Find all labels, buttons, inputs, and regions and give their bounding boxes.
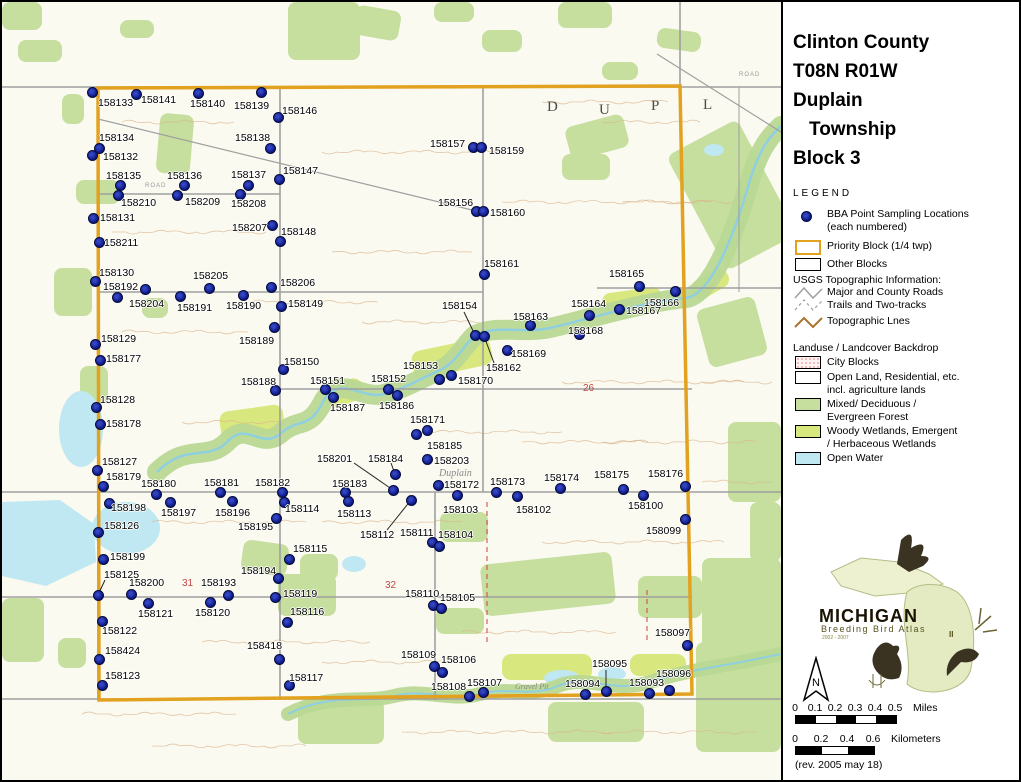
sampling-point-label: 158207 xyxy=(232,223,267,234)
sampling-point-dot-158184 xyxy=(390,469,401,480)
sampling-point-dot-158121 xyxy=(143,598,154,609)
sampling-point-label: 158201 xyxy=(317,454,352,465)
scale-tick: 0.5 xyxy=(888,702,903,714)
map-document: DUPLDuplainGravel Pit263132ROADROAD 1581… xyxy=(0,0,1021,782)
sampling-point-label: 158162 xyxy=(486,363,521,374)
sampling-point-dot-158125 xyxy=(93,590,104,601)
logo-numeral: II xyxy=(949,630,953,639)
sampling-point-label: 158192 xyxy=(103,282,138,293)
sampling-point-dot-158211 xyxy=(94,237,105,248)
sampling-point-label: 158132 xyxy=(103,152,138,163)
sampling-point-label: 158185 xyxy=(427,441,462,452)
city-blocks-swatch xyxy=(795,356,821,369)
sampling-point-label: 158191 xyxy=(177,303,212,314)
sampling-point-dot-158160 xyxy=(478,206,489,217)
sampling-point-label: 158172 xyxy=(444,480,479,491)
sampling-point-label: 158176 xyxy=(648,469,683,480)
legend-label: Major and County Roads xyxy=(827,286,943,299)
topo-map-area: DUPLDuplainGravel Pit263132ROADROAD 1581… xyxy=(2,2,783,780)
sampling-point-label: 158152 xyxy=(371,374,406,385)
sampling-point-label: 158153 xyxy=(403,361,438,372)
open-water-swatch xyxy=(795,452,821,465)
sampling-point-label: 158102 xyxy=(516,505,551,516)
sampling-point-label: 158130 xyxy=(99,268,134,279)
landuse-label: Mixed/ Deciduous / xyxy=(827,398,916,411)
sampling-point-dot-158126 xyxy=(93,527,104,538)
sampling-point-dot-158093 xyxy=(644,688,655,699)
sampling-point-dot-158176 xyxy=(680,481,691,492)
sampling-point-dot-158104 xyxy=(434,541,445,552)
sampling-point-label: 158198 xyxy=(111,503,146,514)
sampling-point-dot-158207 xyxy=(267,220,278,231)
sampling-point-label: 158210 xyxy=(121,198,156,209)
sampling-point-dot-158131 xyxy=(88,213,99,224)
sampling-point-dot-158209 xyxy=(172,190,183,201)
sampling-point-dot-158187 xyxy=(328,392,339,403)
sampling-point-dot-158205 xyxy=(204,283,215,294)
sampling-point-label: 158200 xyxy=(129,578,164,589)
sampling-point-dot-158138 xyxy=(265,143,276,154)
sampling-point-label: 158129 xyxy=(101,334,136,345)
sampling-point-label: 158110 xyxy=(405,589,439,600)
sampling-point-label: 158160 xyxy=(490,208,525,219)
legend-label: Trails and Two-tracks xyxy=(827,299,943,312)
sampling-point-label: 158190 xyxy=(226,301,261,312)
sampling-point-label: 158099 xyxy=(646,526,681,537)
sampling-point-label: 158194 xyxy=(241,566,276,577)
sampling-point-dot-158113 xyxy=(343,496,354,507)
sampling-point-dot-158174 xyxy=(555,483,566,494)
sampling-point-dot-158192 xyxy=(112,292,123,303)
topo-zigzag-icon xyxy=(793,315,825,329)
sampling-point-label: 158103 xyxy=(443,505,478,516)
sampling-point-label: 158206 xyxy=(280,278,315,289)
sampling-point-label: 158137 xyxy=(231,170,266,181)
landuse-item-open: Open Land, Residential, etc. incl. agric… xyxy=(793,371,960,397)
bba-point-icon xyxy=(801,211,812,222)
sampling-point-dot-158120 xyxy=(205,597,216,608)
km-scale-bar xyxy=(795,746,875,755)
sampling-point-dot-158095 xyxy=(601,686,612,697)
sampling-point-dot-158173 xyxy=(491,487,502,498)
sampling-point-dot-158106 xyxy=(437,667,448,678)
sampling-point-label: 158117 xyxy=(289,673,323,684)
sampling-point-dot-158201 xyxy=(388,485,399,496)
sampling-point-dot-158196 xyxy=(227,496,238,507)
sampling-point-label: 158095 xyxy=(592,659,627,670)
sampling-point-label: 158146 xyxy=(282,106,317,117)
sampling-point-label: 158094 xyxy=(565,679,600,690)
sampling-point-dot-158127 xyxy=(92,465,103,476)
sampling-point-label: 158116 xyxy=(290,607,324,618)
sampling-point-dot-158094 xyxy=(580,689,591,700)
sampling-point-label: 158211 xyxy=(104,238,138,249)
sampling-point-label: 158205 xyxy=(193,271,228,282)
sampling-point-dot-158097 xyxy=(682,640,693,651)
sampling-point-label: 158138 xyxy=(235,133,270,144)
sampling-point-dot-158115 xyxy=(284,554,295,565)
sampling-point-dot-158165 xyxy=(634,281,645,292)
sampling-point-label: 158096 xyxy=(656,669,691,680)
sampling-point-label: 158161 xyxy=(484,259,519,270)
sampling-point-label: 158140 xyxy=(190,99,225,110)
sampling-point-dot-158162 xyxy=(479,331,490,342)
landuse-label: Open Water xyxy=(827,452,883,465)
miles-scale-bar xyxy=(795,715,897,724)
scale-tick: 0 xyxy=(792,733,798,745)
sampling-point-label: 158100 xyxy=(628,501,663,512)
sampling-point-label: 158147 xyxy=(283,166,318,177)
sampling-point-label: 158136 xyxy=(167,171,202,182)
sampling-point-dot-158200 xyxy=(126,589,137,600)
title-line: Duplain xyxy=(793,86,929,115)
sampling-point-label: 158193 xyxy=(201,578,236,589)
sampling-point-dot-158177 xyxy=(95,355,106,366)
sampling-point-label: 158183 xyxy=(332,479,367,490)
sampling-point-dot-158102 xyxy=(512,491,523,502)
scale-unit: Kilometers xyxy=(891,733,941,745)
sampling-point-dot-158164 xyxy=(584,310,595,321)
legend-item-topo: Topographic Lnes xyxy=(793,315,910,328)
sampling-point-label: 158163 xyxy=(513,312,548,323)
sampling-point-label: 158187 xyxy=(330,403,365,414)
sampling-point-label: 158127 xyxy=(102,457,137,468)
sampling-point-dot-158096 xyxy=(664,685,675,696)
landuse-label: Woody Wetlands, Emergent xyxy=(827,425,957,438)
sampling-point-label: 158131 xyxy=(100,213,135,224)
north-label: N xyxy=(812,677,820,689)
landuse-label: incl. agriculture lands xyxy=(827,384,960,397)
open-land-swatch xyxy=(795,371,821,384)
map-title: Clinton County T08N R01W Duplain Townshi… xyxy=(793,28,929,173)
sampling-point-label: 158173 xyxy=(490,477,525,488)
sampling-point-label: 158156 xyxy=(438,198,473,209)
sampling-point-label: 158203 xyxy=(434,456,469,467)
sampling-point-label: 158135 xyxy=(106,171,141,182)
sampling-point-label: 158120 xyxy=(195,608,230,619)
sampling-point-label: 158169 xyxy=(511,349,546,360)
title-line: Block 3 xyxy=(793,144,929,173)
sampling-point-label: 158111 xyxy=(400,528,433,539)
landuse-item-city: City Blocks xyxy=(793,356,879,369)
sampling-point-label: 158126 xyxy=(104,521,139,532)
sampling-point-label: 158164 xyxy=(571,299,606,310)
sampling-point-label: 158168 xyxy=(568,326,603,337)
sampling-point-label: 158177 xyxy=(106,354,141,365)
scale-tick: 0.2 xyxy=(814,733,829,745)
scale-unit: Miles xyxy=(913,702,938,714)
sampling-point-label: 158109 xyxy=(401,650,436,661)
sampling-point-label: 158119 xyxy=(283,589,317,600)
sampling-point-label: 158197 xyxy=(161,508,196,519)
sampling-point-dot-158119 xyxy=(270,592,281,603)
sampling-point-dot-158139 xyxy=(256,87,267,98)
sampling-point-label: 158184 xyxy=(368,454,403,465)
sampling-point-label: 158195 xyxy=(238,522,273,533)
title-line: Township xyxy=(793,115,929,144)
landuse-label: / Herbaceous Wetlands xyxy=(827,438,957,451)
sampling-point-label: 158106 xyxy=(441,655,476,666)
sampling-point-dot-158197 xyxy=(165,497,176,508)
sampling-point-dot-158167 xyxy=(614,304,625,315)
sampling-point-dot-158424 xyxy=(94,654,105,665)
sampling-point-label: 158208 xyxy=(231,199,266,210)
legend-label: BBA Point Sampling Locations xyxy=(827,208,969,221)
sampling-point-label: 158112 xyxy=(360,530,394,541)
sampling-point-label: 158113 xyxy=(337,509,371,520)
sampling-point-label: 158108 xyxy=(431,682,466,693)
scale-tick: 0.2 xyxy=(828,702,843,714)
landuse-label: City Blocks xyxy=(827,356,879,369)
sampling-point-label: 158181 xyxy=(204,478,239,489)
sampling-point-label: 158165 xyxy=(609,269,644,280)
sampling-point-dot-158204 xyxy=(140,284,151,295)
sampling-point-label: 158148 xyxy=(281,227,316,238)
sampling-point-dot-158185 xyxy=(411,429,422,440)
sampling-point-dot-158103 xyxy=(452,490,463,501)
sampling-point-dot-158166 xyxy=(670,286,681,297)
sampling-point-label: 158105 xyxy=(440,593,475,604)
legend-item-bba: BBA Point Sampling Locations (each numbe… xyxy=(793,208,969,234)
sampling-point-label: 158134 xyxy=(99,133,134,144)
scale-tick: 0.1 xyxy=(808,702,823,714)
legend-heading: LEGEND xyxy=(793,188,852,199)
scale-tick: 0.6 xyxy=(866,733,881,745)
sampling-points-layer: 1581331581411581401581391581461581341581… xyxy=(2,2,781,780)
sampling-point-dot-158099 xyxy=(680,514,691,525)
sampling-point-label: 158107 xyxy=(467,678,502,689)
sampling-point-dot-158149 xyxy=(276,301,287,312)
sampling-point-label: 158174 xyxy=(544,473,579,484)
sampling-point-label: 158154 xyxy=(442,301,477,312)
title-line: Clinton County xyxy=(793,28,929,57)
sampling-point-label: 158180 xyxy=(141,479,176,490)
legend-label: Priority Block (1/4 twp) xyxy=(827,240,932,253)
sampling-point-dot-158418 xyxy=(274,654,285,665)
sampling-point-label: 158122 xyxy=(102,626,137,637)
logo-subtitle: Breeding Bird Atlas xyxy=(821,624,926,634)
sampling-point-dot-158161 xyxy=(479,269,490,280)
km-scale-ticks: 00.20.40.6Kilometers xyxy=(795,733,1015,745)
sampling-point-label: 158418 xyxy=(247,641,282,652)
sampling-point-dot-158180 xyxy=(151,489,162,500)
sampling-point-dot-158112 xyxy=(406,495,417,506)
sampling-point-label: 158186 xyxy=(379,401,414,412)
other-blocks-swatch xyxy=(795,258,821,271)
sampling-point-label: 158188 xyxy=(241,377,276,388)
sampling-point-label: 158104 xyxy=(438,530,473,541)
sampling-point-dot-158199 xyxy=(98,554,109,565)
sampling-point-label: 158133 xyxy=(98,98,133,109)
legend-item-roads: Major and County Roads Trails and Two-tr… xyxy=(793,286,943,312)
sampling-point-dot-158172 xyxy=(433,480,444,491)
sampling-point-label: 158167 xyxy=(626,306,661,317)
sampling-point-dot-158116 xyxy=(282,617,293,628)
scale-tick: 0.4 xyxy=(868,702,883,714)
title-line: T08N R01W xyxy=(793,57,929,86)
sampling-point-dot-158140 xyxy=(193,88,204,99)
sampling-point-label: 158114 xyxy=(285,504,319,515)
sampling-point-dot-158190 xyxy=(238,290,249,301)
scale-tick: 0.3 xyxy=(848,702,863,714)
roads-zigzag-icon xyxy=(793,286,825,312)
revision-date: (rev. 2005 may 18) xyxy=(795,759,882,771)
sampling-point-label: 158196 xyxy=(215,508,250,519)
scale-tick: 0 xyxy=(792,702,798,714)
logo-years: 2002 - 2007 xyxy=(822,635,849,641)
wetland-swatch xyxy=(795,425,821,438)
sampling-point-dot-158178 xyxy=(95,419,106,430)
info-panel: Clinton County T08N R01W Duplain Townshi… xyxy=(783,2,1019,780)
miles-scale-ticks: 00.10.20.30.40.5Miles xyxy=(795,702,1015,714)
legend-label: (each numbered) xyxy=(827,221,969,234)
landuse-item-water: Open Water xyxy=(793,452,883,465)
legend-item-priority: Priority Block (1/4 twp) xyxy=(793,240,932,253)
sampling-point-dot-158133 xyxy=(87,87,98,98)
sampling-point-label: 158097 xyxy=(655,628,690,639)
sampling-point-dot-158171 xyxy=(422,425,433,436)
sampling-point-dot-158170 xyxy=(446,370,457,381)
sampling-point-label: 158150 xyxy=(284,357,319,368)
landuse-heading: Landuse / Landcover Backdrop xyxy=(793,342,938,354)
sampling-point-dot-158105 xyxy=(436,603,447,614)
sampling-point-label: 158189 xyxy=(239,336,274,347)
sampling-point-label: 158149 xyxy=(288,299,323,310)
landuse-item-forest: Mixed/ Deciduous / Evergreen Forest xyxy=(793,398,916,424)
sampling-point-label: 158178 xyxy=(106,419,141,430)
sampling-point-label: 158170 xyxy=(458,376,493,387)
landuse-label: Open Land, Residential, etc. xyxy=(827,371,960,384)
sampling-point-label: 158171 xyxy=(410,415,445,426)
sampling-point-label: 158175 xyxy=(594,470,629,481)
sampling-point-label: 158151 xyxy=(310,376,345,387)
sampling-point-dot-158175 xyxy=(618,484,629,495)
legend-item-other: Other Blocks xyxy=(793,258,887,271)
sampling-point-dot-158206 xyxy=(266,282,277,293)
landuse-item-wetland: Woody Wetlands, Emergent / Herbaceous We… xyxy=(793,425,957,451)
sampling-point-dot-158193 xyxy=(223,590,234,601)
sampling-point-dot-158153 xyxy=(434,374,445,385)
priority-block-swatch xyxy=(795,240,821,255)
sampling-point-label: 158179 xyxy=(106,472,141,483)
sampling-point-label: 158139 xyxy=(234,101,269,112)
sampling-point-label: 158157 xyxy=(430,139,465,150)
sampling-point-label: 158128 xyxy=(100,395,135,406)
sampling-point-label: 158123 xyxy=(105,671,140,682)
sampling-point-label: 158209 xyxy=(185,197,220,208)
sampling-point-dot-158129 xyxy=(90,339,101,350)
sampling-point-label: 158424 xyxy=(105,646,140,657)
sampling-point-dot-158189 xyxy=(269,322,280,333)
sampling-point-dot-158186 xyxy=(392,390,403,401)
sampling-point-dot-158141 xyxy=(131,89,142,100)
sampling-point-label: 158199 xyxy=(110,552,145,563)
sampling-point-label: 158115 xyxy=(293,544,327,555)
sampling-point-label: 158182 xyxy=(255,478,290,489)
landuse-label: Evergreen Forest xyxy=(827,411,916,424)
scale-tick: 0.4 xyxy=(840,733,855,745)
sampling-point-dot-158191 xyxy=(175,291,186,302)
forest-swatch xyxy=(795,398,821,411)
legend-label: Topographic Lnes xyxy=(827,315,910,328)
sampling-point-dot-158132 xyxy=(87,150,98,161)
sampling-point-dot-158159 xyxy=(476,142,487,153)
sampling-point-label: 158159 xyxy=(489,146,524,157)
sampling-point-label: 158141 xyxy=(141,95,176,106)
legend-label: Other Blocks xyxy=(827,258,887,271)
sampling-point-label: 158204 xyxy=(129,299,164,310)
sampling-point-dot-158203 xyxy=(422,454,433,465)
sampling-point-dot-158100 xyxy=(638,490,649,501)
sampling-point-dot-158137 xyxy=(243,180,254,191)
sampling-point-label: 158121 xyxy=(138,609,173,620)
